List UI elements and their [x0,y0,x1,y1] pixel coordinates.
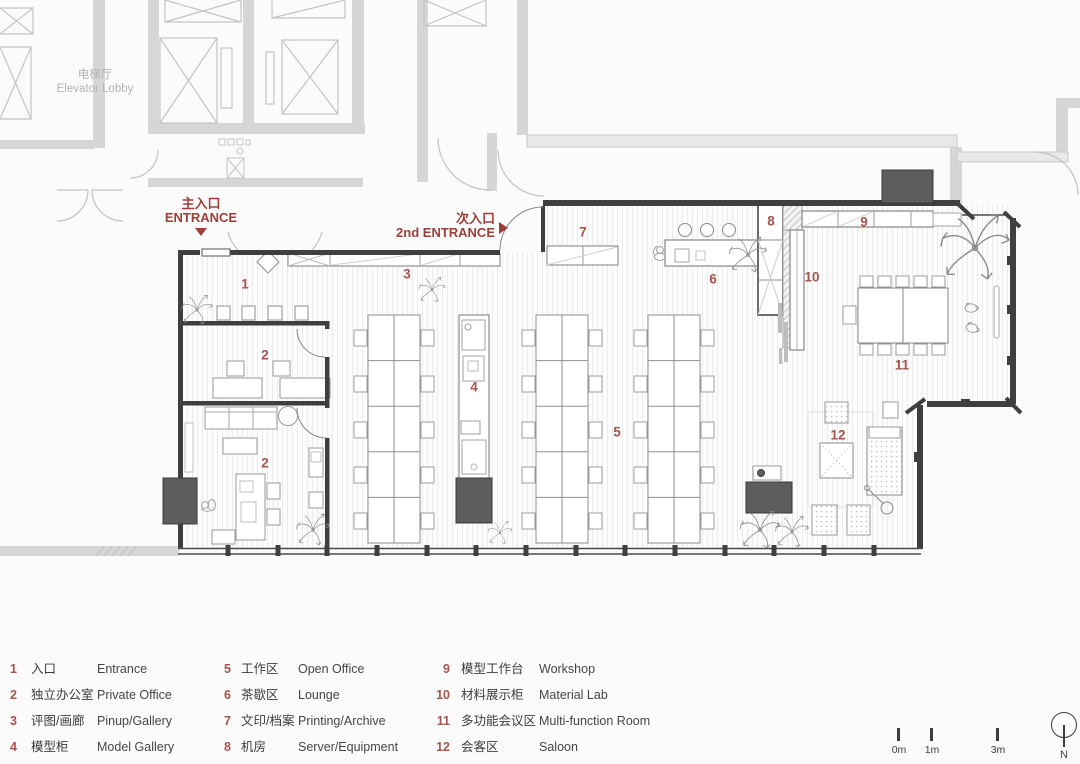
room-marker-1: 1 [241,277,249,292]
legend-label-cn: 独立办公室 [31,682,97,708]
legend-label-en: Server/Equipment [298,734,398,760]
legend-label-en: Lounge [298,682,340,708]
room-marker-2a: 2 [261,348,269,363]
legend-item: 6 茶歇区 Lounge [215,682,398,708]
room-marker-6: 6 [709,272,717,287]
legend-num: 12 [434,734,450,760]
room-marker-7: 7 [579,225,587,240]
main-entrance-label-cn: 主入口 [141,197,261,211]
legend-label-en: Pinup/Gallery [97,708,172,734]
second-entrance-label-cn: 次入口 [377,212,495,226]
archive-cabinet [547,246,618,265]
legend-label-cn: 茶歇区 [241,682,298,708]
room-marker-9: 9 [860,215,868,230]
legend-label-cn: 评图/画廊 [31,708,97,734]
legend-label-en: Material Lab [539,682,608,708]
legend-label-en: Model Gallery [97,734,174,760]
entrance-arrow-down-icon [195,228,207,236]
room-marker-12: 12 [830,428,845,443]
legend-label-cn: 模型工作台 [461,656,539,682]
model-cabinet [459,315,489,478]
second-entrance-label-en: 2nd ENTRANCE [377,226,495,240]
room-marker-5: 5 [613,425,621,440]
entrance-arrow-right-icon [499,222,508,234]
main-entrance-door [202,249,230,256]
room-marker-8: 8 [767,214,775,229]
main-entrance-label-en: ENTRANCE [141,211,261,225]
elevator-lobby-label-en: Elevator Lobby [35,82,155,96]
legend-num: 1 [1,656,17,682]
lobby-fixtures [219,139,250,178]
main-entrance-label: 主入口 ENTRANCE [141,197,261,236]
legend-label-en: Multi-function Room [539,708,650,734]
legend-item: 12 会客区 Saloon [434,734,650,760]
room-marker-10: 10 [804,270,819,285]
legend: 1 入口 Entrance 2 独立办公室 Private Office 3 评… [0,656,1080,764]
legend-label-cn: 模型柜 [31,734,97,760]
legend-label-en: Entrance [97,656,147,682]
room-marker-2b: 2 [261,456,269,471]
legend-label-en: Private Office [97,682,172,708]
legend-num: 7 [215,708,231,734]
legend-label-cn: 材料展示柜 [461,682,539,708]
legend-num: 2 [1,682,17,708]
elevator-lobby-label-cn: 电梯厅 [35,68,155,82]
legend-item: 10 材料展示柜 Material Lab [434,682,650,708]
legend-num: 11 [434,708,450,734]
legend-column-2: 5 工作区 Open Office 6 茶歇区 Lounge 7 文印/档案 P… [215,656,398,760]
printer-desk [753,466,781,480]
legend-item: 11 多功能会议区 Multi-function Room [434,708,650,734]
room-marker-4: 4 [470,380,478,395]
legend-label-cn: 入口 [31,656,97,682]
legend-item: 8 机房 Server/Equipment [215,734,398,760]
floor-plan-drawing [0,0,1080,630]
room-marker-11: 11 [895,358,909,373]
legend-label-cn: 文印/档案 [241,708,298,734]
legend-num: 6 [215,682,231,708]
legend-num: 4 [1,734,17,760]
legend-item: 5 工作区 Open Office [215,656,398,682]
elevator-lobby-label: 电梯厅 Elevator Lobby [35,68,155,96]
legend-label-cn: 多功能会议区 [461,708,539,734]
legend-item: 4 模型柜 Model Gallery [1,734,174,760]
legend-label-en: Saloon [539,734,578,760]
legend-label-en: Printing/Archive [298,708,386,734]
second-entrance-label: 次入口 2nd ENTRANCE [377,212,495,240]
legend-num: 9 [434,656,450,682]
legend-num: 5 [215,656,231,682]
legend-num: 3 [1,708,17,734]
workshop-counter [802,211,961,227]
legend-label-en: Workshop [539,656,595,682]
legend-label-cn: 工作区 [241,656,298,682]
legend-label-cn: 会客区 [461,734,539,760]
legend-num: 8 [215,734,231,760]
legend-item: 9 模型工作台 Workshop [434,656,650,682]
legend-item: 7 文印/档案 Printing/Archive [215,708,398,734]
legend-num: 10 [434,682,450,708]
legend-item: 2 独立办公室 Private Office [1,682,174,708]
legend-label-en: Open Office [298,656,364,682]
floor-plan-page: 电梯厅 Elevator Lobby 主入口 ENTRANCE 次入口 2nd … [0,0,1080,764]
legend-item: 3 评图/画廊 Pinup/Gallery [1,708,174,734]
legend-column-3: 9 模型工作台 Workshop 10 材料展示柜 Material Lab 1… [434,656,650,760]
room-marker-3: 3 [403,267,411,282]
legend-column-1: 1 入口 Entrance 2 独立办公室 Private Office 3 评… [1,656,174,760]
legend-label-cn: 机房 [241,734,298,760]
legend-item: 1 入口 Entrance [1,656,174,682]
